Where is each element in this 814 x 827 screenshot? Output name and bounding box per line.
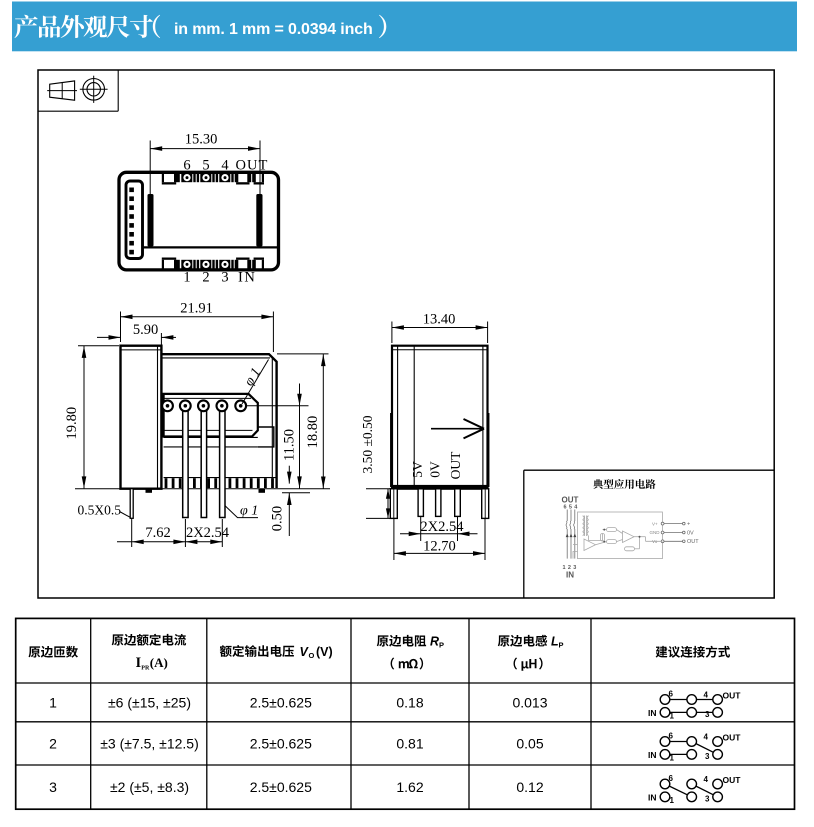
svg-text:2: 2: [202, 270, 209, 286]
svg-text:5V: 5V: [410, 461, 425, 478]
svg-text:1: 1: [183, 270, 190, 286]
svg-text:OUT: OUT: [723, 775, 742, 785]
svg-text:5.90: 5.90: [133, 322, 158, 338]
svg-text:11.50: 11.50: [282, 429, 298, 461]
svg-text:in mm. 1 mm = 0.0394 inch: in mm. 1 mm = 0.0394 inch: [174, 21, 373, 38]
svg-text:2.5±0.625: 2.5±0.625: [250, 779, 312, 795]
svg-text:3: 3: [221, 270, 228, 286]
svg-text:IN: IN: [648, 792, 657, 802]
svg-text:OUT: OUT: [448, 451, 463, 479]
svg-text:2X2.54: 2X2.54: [186, 525, 230, 541]
svg-text:OUT: OUT: [687, 539, 699, 545]
svg-text:12.70: 12.70: [423, 539, 456, 555]
svg-text:IN: IN: [648, 708, 657, 718]
svg-text:0.81: 0.81: [396, 735, 423, 751]
svg-text:±6 (±15, ±25): ±6 (±15, ±25): [108, 694, 191, 710]
svg-text:0V: 0V: [427, 461, 442, 478]
svg-text:1.62: 1.62: [396, 779, 423, 795]
svg-text:3: 3: [49, 779, 57, 795]
svg-text:21.91: 21.91: [180, 301, 213, 317]
svg-text:3: 3: [705, 710, 710, 719]
svg-text:±2 (±5, ±8.3): ±2 (±5, ±8.3): [110, 779, 189, 795]
svg-text:3.50 ±0.50: 3.50 ±0.50: [360, 415, 375, 473]
svg-text:18.80: 18.80: [305, 416, 321, 449]
svg-text:+: +: [687, 521, 690, 527]
svg-text:φ 1: φ 1: [242, 365, 264, 388]
svg-text:6: 6: [669, 774, 674, 783]
svg-text:0.18: 0.18: [396, 694, 423, 710]
svg-text:R: R: [430, 635, 439, 649]
svg-text:OUT: OUT: [562, 496, 579, 505]
svg-text:1: 1: [670, 711, 675, 720]
svg-text:P: P: [439, 641, 444, 650]
svg-text:IN: IN: [648, 750, 657, 760]
svg-text:±3 (±7.5, ±12.5): ±3 (±7.5, ±12.5): [100, 735, 199, 751]
svg-text:L: L: [551, 635, 559, 649]
svg-text:1: 1: [670, 796, 675, 805]
svg-text:1: 1: [49, 694, 57, 710]
svg-text:IN: IN: [238, 270, 256, 286]
svg-text:0.50: 0.50: [270, 506, 286, 531]
svg-text:4: 4: [704, 691, 709, 700]
svg-text:φ 1: φ 1: [240, 504, 258, 519]
svg-text:V+: V+: [652, 521, 658, 526]
svg-text:0V: 0V: [687, 530, 694, 536]
svg-text:0.05: 0.05: [516, 735, 543, 751]
svg-text:O: O: [309, 651, 315, 660]
svg-text:4: 4: [704, 775, 709, 784]
svg-text:19.80: 19.80: [64, 407, 80, 440]
svg-text:2.5±0.625: 2.5±0.625: [250, 694, 312, 710]
svg-text:P: P: [559, 641, 564, 650]
svg-text:13.40: 13.40: [423, 312, 456, 328]
svg-text:15.30: 15.30: [185, 132, 218, 148]
svg-text:0.5X0.5: 0.5X0.5: [78, 503, 122, 518]
svg-text:3: 3: [705, 794, 710, 803]
svg-text:7.62: 7.62: [145, 525, 170, 541]
svg-text:OUT: OUT: [723, 690, 742, 700]
svg-text:(V): (V): [316, 645, 333, 659]
svg-text:IN: IN: [566, 571, 574, 580]
svg-text:6: 6: [669, 690, 674, 699]
svg-text:3: 3: [705, 752, 710, 761]
svg-text:2: 2: [49, 735, 57, 751]
svg-text:OUT: OUT: [723, 732, 742, 742]
svg-text:1: 1: [670, 753, 675, 762]
svg-text:0.013: 0.013: [512, 694, 547, 710]
svg-text:GND: GND: [650, 530, 661, 535]
svg-text:2.5±0.625: 2.5±0.625: [250, 735, 312, 751]
svg-text:(A): (A): [150, 655, 168, 670]
svg-text:4: 4: [704, 733, 709, 742]
svg-text:6: 6: [669, 732, 674, 741]
svg-text:0.12: 0.12: [516, 779, 543, 795]
svg-text:PR: PR: [141, 665, 150, 671]
